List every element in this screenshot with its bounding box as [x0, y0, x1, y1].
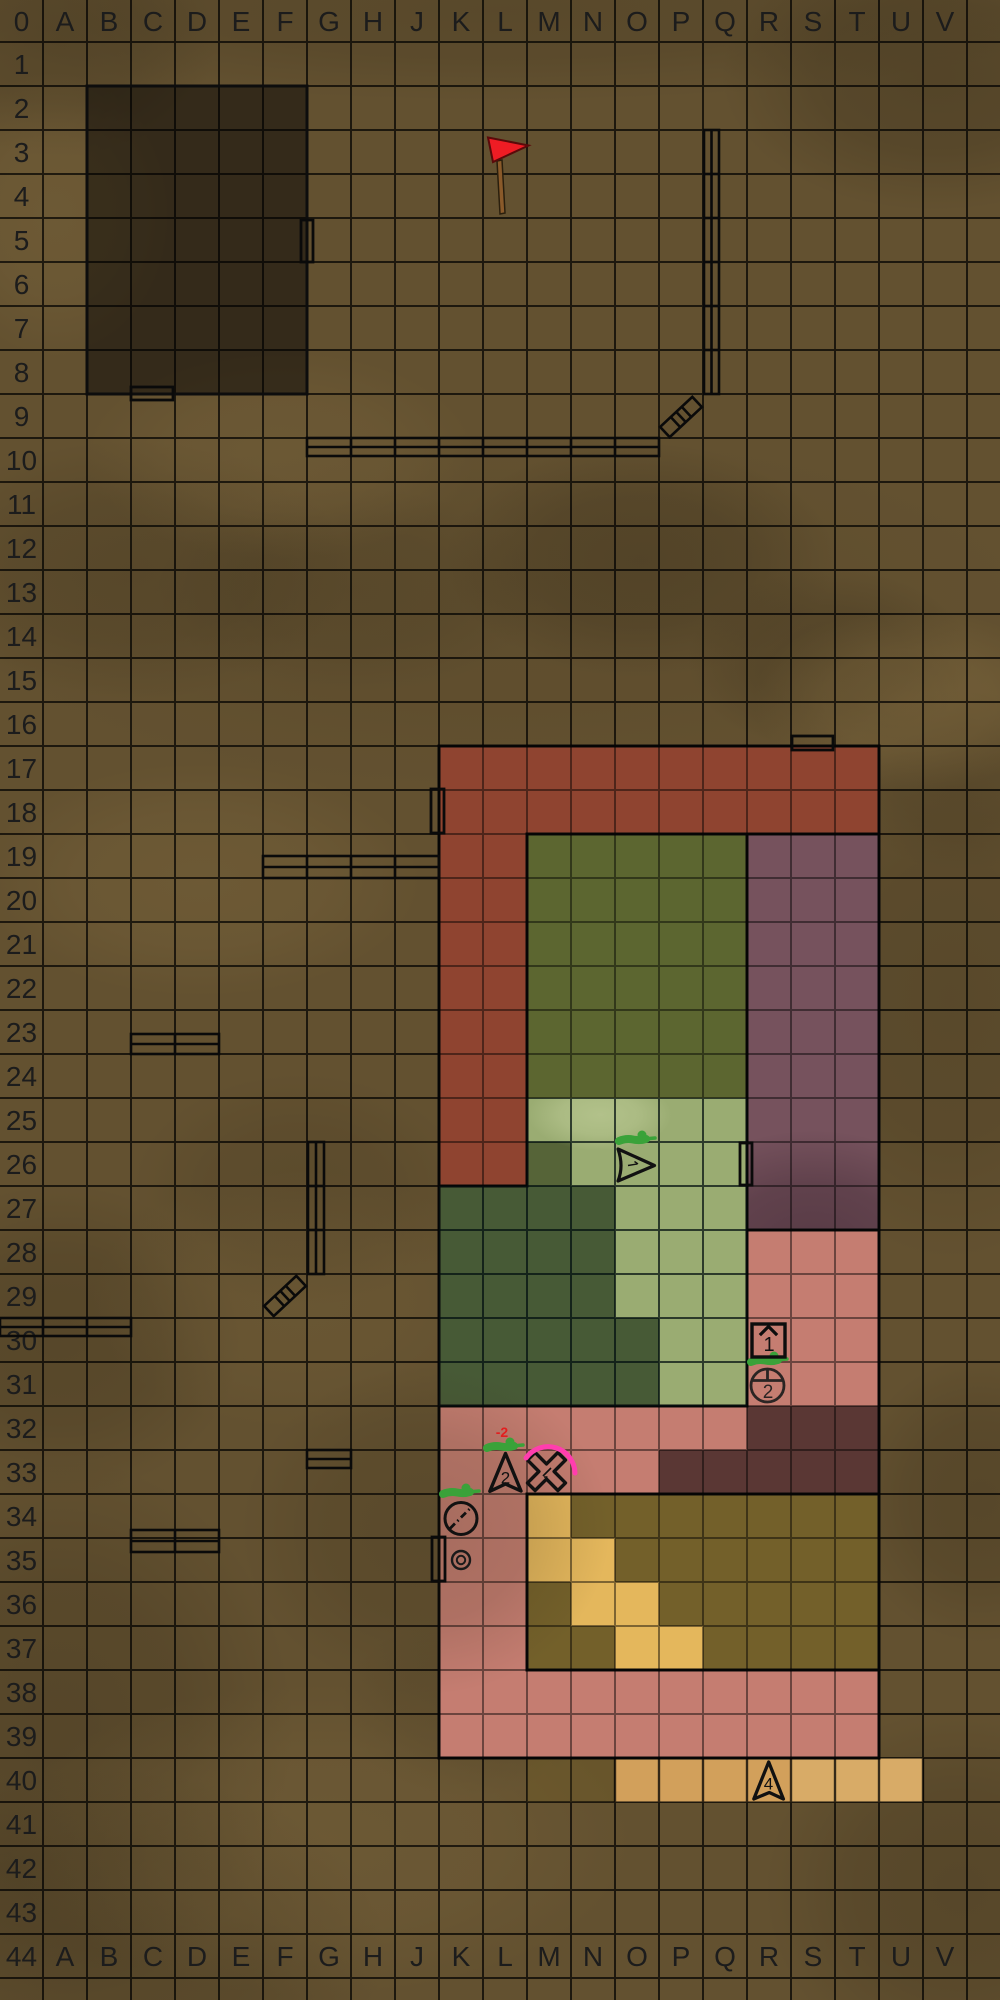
svg-text:28: 28	[6, 1237, 37, 1268]
svg-text:-2: -2	[496, 1424, 509, 1440]
svg-text:R: R	[759, 1941, 779, 1972]
svg-text:25: 25	[6, 1105, 37, 1136]
svg-text:A: A	[56, 1941, 75, 1972]
svg-text:36: 36	[6, 1589, 37, 1620]
svg-text:11: 11	[7, 489, 36, 520]
svg-text:22: 22	[6, 973, 37, 1004]
svg-text:35: 35	[6, 1545, 37, 1576]
svg-text:F: F	[276, 1941, 293, 1972]
svg-text:6: 6	[14, 269, 30, 300]
svg-text:H: H	[363, 6, 383, 37]
svg-text:10: 10	[6, 445, 37, 476]
svg-text:G: G	[318, 1941, 340, 1972]
svg-text:29: 29	[6, 1281, 37, 1312]
svg-text:42: 42	[6, 1853, 37, 1884]
svg-text:D: D	[187, 6, 207, 37]
svg-text:39: 39	[6, 1721, 37, 1752]
svg-text:23: 23	[6, 1017, 37, 1048]
svg-text:F: F	[276, 6, 293, 37]
svg-text:21: 21	[6, 929, 37, 960]
svg-text:15: 15	[6, 665, 37, 696]
svg-text:S: S	[804, 6, 823, 37]
svg-text:1: 1	[763, 1334, 774, 1356]
svg-text:26: 26	[6, 1149, 37, 1180]
svg-text:O: O	[626, 1941, 648, 1972]
svg-text:B: B	[100, 6, 119, 37]
svg-text:C: C	[143, 1941, 163, 1972]
svg-text:38: 38	[6, 1677, 37, 1708]
svg-text:N: N	[583, 1941, 603, 1972]
svg-text:P: P	[672, 1941, 691, 1972]
svg-text:37: 37	[6, 1633, 37, 1664]
svg-text:H: H	[363, 1941, 383, 1972]
svg-text:S: S	[804, 1941, 823, 1972]
svg-text:E: E	[232, 1941, 251, 1972]
svg-text:K: K	[452, 6, 471, 37]
svg-text:44: 44	[6, 1941, 37, 1972]
svg-text:27: 27	[6, 1193, 37, 1224]
svg-text:32: 32	[6, 1413, 37, 1444]
svg-text:1: 1	[14, 49, 30, 80]
svg-text:0: 0	[14, 6, 30, 37]
svg-text:30: 30	[6, 1325, 37, 1356]
svg-text:C: C	[143, 6, 163, 37]
svg-text:O: O	[626, 6, 648, 37]
svg-text:G: G	[318, 6, 340, 37]
svg-text:M: M	[537, 1941, 560, 1972]
svg-text:43: 43	[6, 1897, 37, 1928]
svg-text:K: K	[452, 1941, 471, 1972]
svg-text:Q: Q	[714, 1941, 736, 1972]
svg-text:34: 34	[6, 1501, 37, 1532]
svg-text:2: 2	[763, 1382, 774, 1403]
svg-text:L: L	[497, 1941, 513, 1972]
svg-text:17: 17	[6, 753, 37, 784]
svg-text:T: T	[848, 6, 865, 37]
svg-text:16: 16	[6, 709, 37, 740]
svg-text:12: 12	[6, 533, 37, 564]
svg-text:9: 9	[14, 401, 30, 432]
svg-text:J: J	[410, 1941, 424, 1972]
svg-text:U: U	[891, 6, 911, 37]
svg-text:2: 2	[501, 1469, 510, 1488]
svg-text:E: E	[232, 6, 251, 37]
svg-text:M: M	[537, 6, 560, 37]
svg-text:19: 19	[6, 841, 37, 872]
svg-text:14: 14	[6, 621, 37, 652]
svg-text:U: U	[891, 1941, 911, 1972]
svg-text:V: V	[936, 1941, 955, 1972]
svg-text:V: V	[936, 6, 955, 37]
svg-text:41: 41	[6, 1809, 37, 1840]
svg-text:4: 4	[764, 1775, 773, 1794]
svg-text:33: 33	[6, 1457, 37, 1488]
svg-text:D: D	[187, 1941, 207, 1972]
svg-text:2: 2	[14, 93, 30, 124]
svg-text:Q: Q	[714, 6, 736, 37]
svg-text:31: 31	[6, 1369, 37, 1400]
svg-text:20: 20	[6, 885, 37, 916]
svg-text:J: J	[410, 6, 424, 37]
svg-text:3: 3	[14, 137, 30, 168]
svg-text:B: B	[100, 1941, 119, 1972]
svg-text:L: L	[497, 6, 513, 37]
svg-text:13: 13	[6, 577, 37, 608]
svg-text:7: 7	[14, 313, 30, 344]
svg-text:A: A	[56, 6, 75, 37]
svg-text:18: 18	[6, 797, 37, 828]
svg-text:40: 40	[6, 1765, 37, 1796]
svg-text:8: 8	[14, 357, 30, 388]
svg-text:5: 5	[14, 225, 30, 256]
svg-text:N: N	[583, 6, 603, 37]
svg-text:4: 4	[14, 181, 30, 212]
svg-text:R: R	[759, 6, 779, 37]
svg-text:24: 24	[6, 1061, 37, 1092]
svg-text:P: P	[672, 6, 691, 37]
svg-text:T: T	[848, 1941, 865, 1972]
